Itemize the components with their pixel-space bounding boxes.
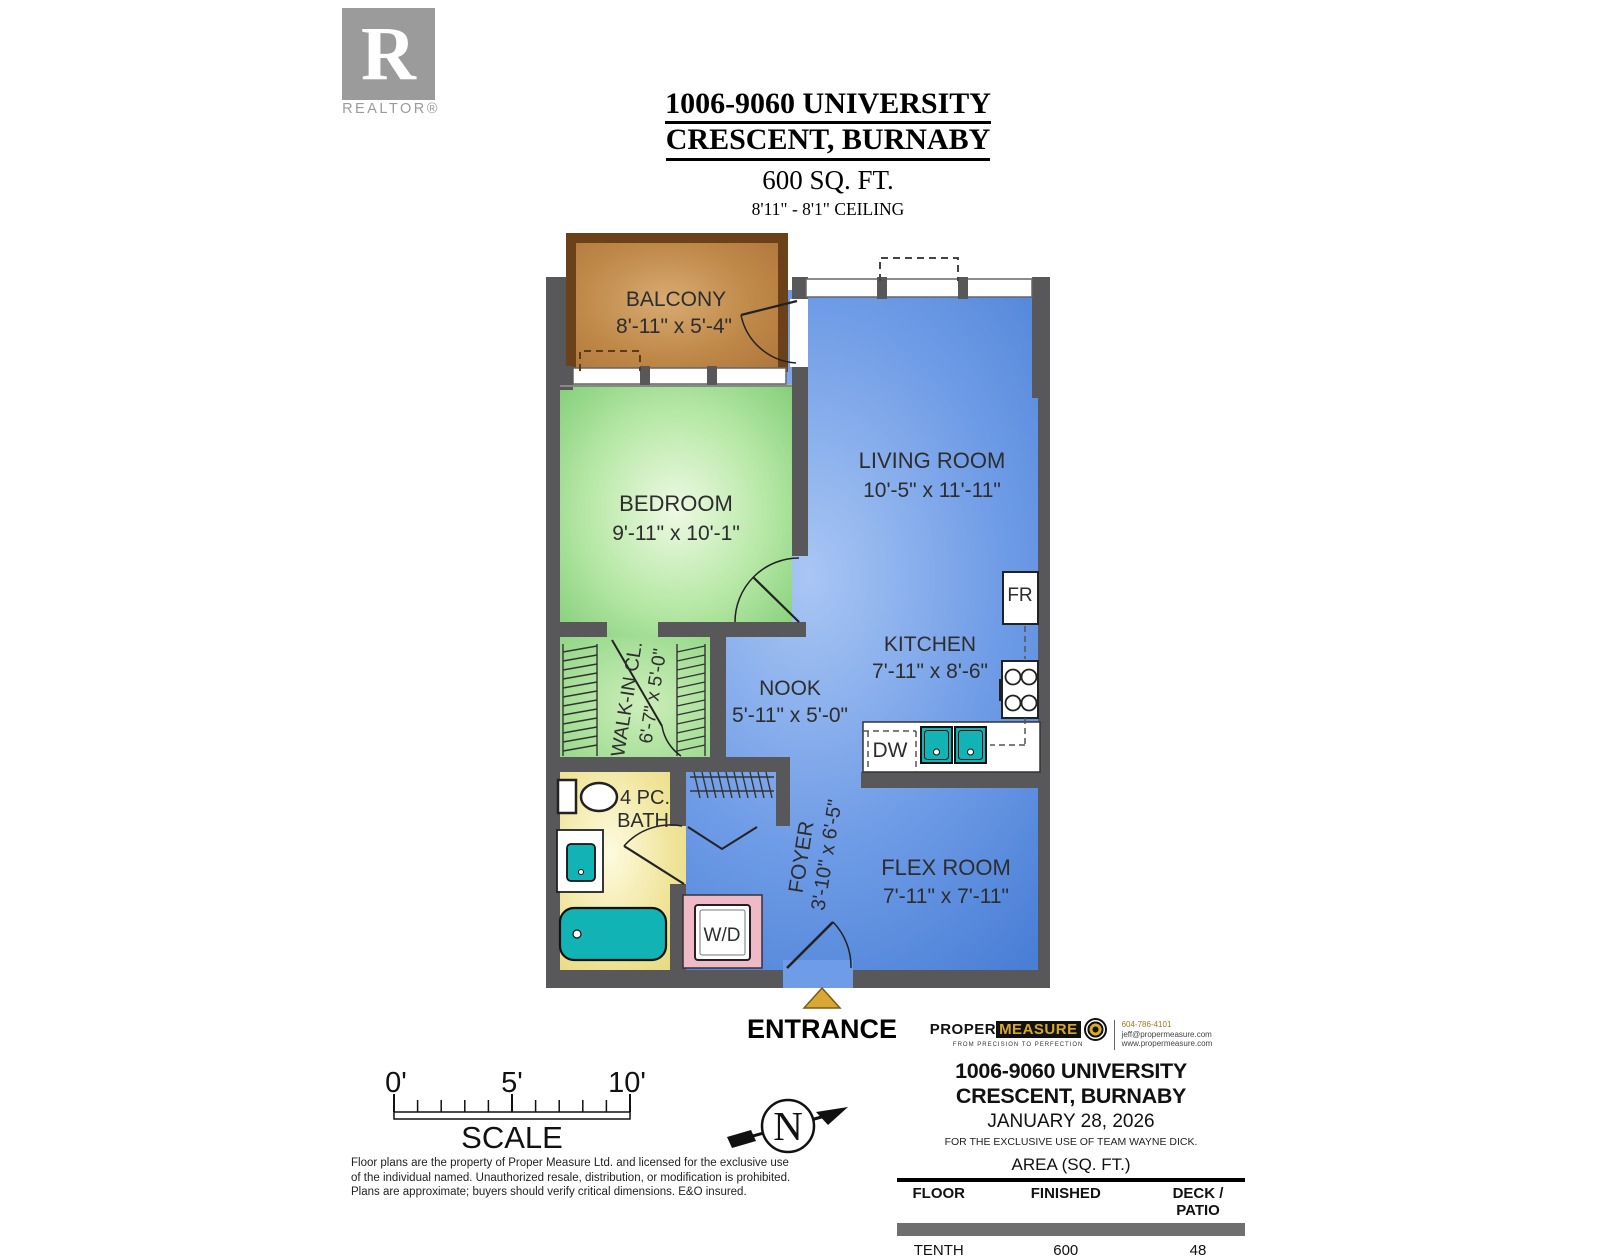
flex-room-label: FLEX ROOM <box>881 855 1011 880</box>
scale-bar: 0' 5' 10' SCALE <box>385 1067 646 1155</box>
bathtub-drain <box>573 930 581 938</box>
contact-email: jeff@propermeasure.com <box>1122 1030 1213 1040</box>
washer-dryer-label: W/D <box>704 925 741 946</box>
title-area: 600 SQ. FT. <box>658 165 998 196</box>
area-table-header-row: FLOOR FINISHED DECK / PATIO <box>897 1182 1245 1223</box>
nook-label: NOOK <box>759 677 821 700</box>
balcony-dims: 8'-11" x 5'-4" <box>616 315 732 338</box>
bath-label-line1: 4 PC. <box>620 787 670 809</box>
living-room-label: LIVING ROOM <box>859 448 1006 473</box>
balcony-door-opening <box>790 299 808 367</box>
title-line1: 1006-9060 UNIVERSITY <box>665 88 991 124</box>
cell-deck-patio: 48 <box>1151 1242 1245 1259</box>
living-room-window <box>806 279 1032 297</box>
disclaimer-line2: of the individual named. Unauthorized re… <box>351 1171 841 1186</box>
area-table: FLOOR FINISHED DECK / PATIO TENTH 600 48 <box>897 1178 1245 1259</box>
window-mullion <box>640 366 650 386</box>
entrance-label: ENTRANCE <box>747 1014 897 1044</box>
toilet-tank <box>558 780 576 813</box>
realtor-logo-label: REALTOR® <box>336 101 446 117</box>
toilet-bowl <box>581 783 617 811</box>
col-header-floor: FLOOR <box>897 1185 981 1219</box>
area-table-title: AREA (SQ. FT.) <box>897 1155 1245 1175</box>
bedroom-label: BEDROOM <box>619 491 733 516</box>
table-row: TENTH 600 48 <box>897 1236 1245 1259</box>
logo-divider <box>1114 1020 1115 1050</box>
north-label: N <box>773 1103 803 1149</box>
footer-info-block: PROPERMEASURE FROM PRECISION TO PERFECTI… <box>897 1018 1245 1259</box>
logo-tagline: FROM PRECISION TO PERFECTION <box>953 1042 1083 1048</box>
entrance-arrow-icon <box>804 988 840 1008</box>
cell-floor: TENTH <box>897 1242 981 1259</box>
vanity-drain <box>579 870 584 875</box>
stove-handle <box>999 679 1003 701</box>
propermeasure-logo: PROPERMEASURE FROM PRECISION TO PERFECTI… <box>897 1018 1245 1058</box>
target-icon <box>1084 1018 1107 1041</box>
flex-room-dims: 7'-11" x 7'-11" <box>883 885 1009 908</box>
logo-word-measure: MEASURE <box>996 1021 1081 1038</box>
cell-finished: 600 <box>981 1242 1152 1259</box>
nook-dims: 5'-11" x 5'-0" <box>732 704 848 727</box>
living-room-dims: 10'-5" x 11'-11" <box>863 479 1001 502</box>
window-mullion <box>707 366 717 386</box>
plan-title-block: 1006-9060 UNIVERSITY CRESCENT, BURNABY 6… <box>658 88 998 220</box>
scale-label: SCALE <box>461 1120 563 1155</box>
scale-tick-10: 10' <box>608 1067 646 1099</box>
realtor-logo: R <box>342 8 435 100</box>
overhead-dashed-outline-top <box>880 258 958 281</box>
title-line2: CRESCENT, BURNABY <box>666 124 991 160</box>
kitchen-dims: 7'-11" x 8'-6" <box>872 660 988 683</box>
fridge-label: FR <box>1007 585 1032 606</box>
bath-label-line2: BATH <box>617 810 669 832</box>
balcony-label: BALCONY <box>626 288 726 311</box>
disclaimer-line1: Floor plans are the property of Proper M… <box>351 1156 841 1171</box>
bedroom-dims: 9'-11" x 10'-1" <box>612 522 740 545</box>
balcony-window-band <box>573 368 786 384</box>
disclaimer-line3: Plans are approximate; buyers should ver… <box>351 1185 841 1200</box>
table-divider-bar <box>897 1223 1245 1236</box>
footer-exclusive-use: FOR THE EXCLUSIVE USE OF TEAM WAYNE DICK… <box>897 1136 1245 1148</box>
window-mullion <box>958 277 968 299</box>
scale-tick-0: 0' <box>385 1067 407 1099</box>
realtor-logo-letter: R <box>361 16 416 92</box>
entrance-recess-floor <box>783 960 853 988</box>
dishwasher-label: DW <box>873 739 908 762</box>
title-ceiling: 8'11" - 8'1" CEILING <box>658 199 998 220</box>
kitchen-label: KITCHEN <box>884 633 976 656</box>
logo-word-proper: PROPER <box>930 1021 996 1038</box>
window-mullion <box>877 277 887 299</box>
contact-website: www.propermeasure.com <box>1122 1039 1213 1049</box>
vanity-sink <box>567 844 595 881</box>
north-compass-icon: N <box>727 1100 848 1152</box>
col-header-finished: FINISHED <box>981 1185 1152 1219</box>
footer-address: 1006-9060 UNIVERSITY CRESCENT, BURNABY <box>897 1059 1245 1109</box>
scale-tick-5: 5' <box>501 1067 523 1099</box>
col-header-deck-patio: DECK / PATIO <box>1151 1185 1245 1219</box>
footer-date: JANUARY 28, 2026 <box>897 1111 1245 1133</box>
disclaimer-text: Floor plans are the property of Proper M… <box>351 1156 841 1200</box>
contact-phone: 604-786-4101 <box>1122 1020 1213 1030</box>
